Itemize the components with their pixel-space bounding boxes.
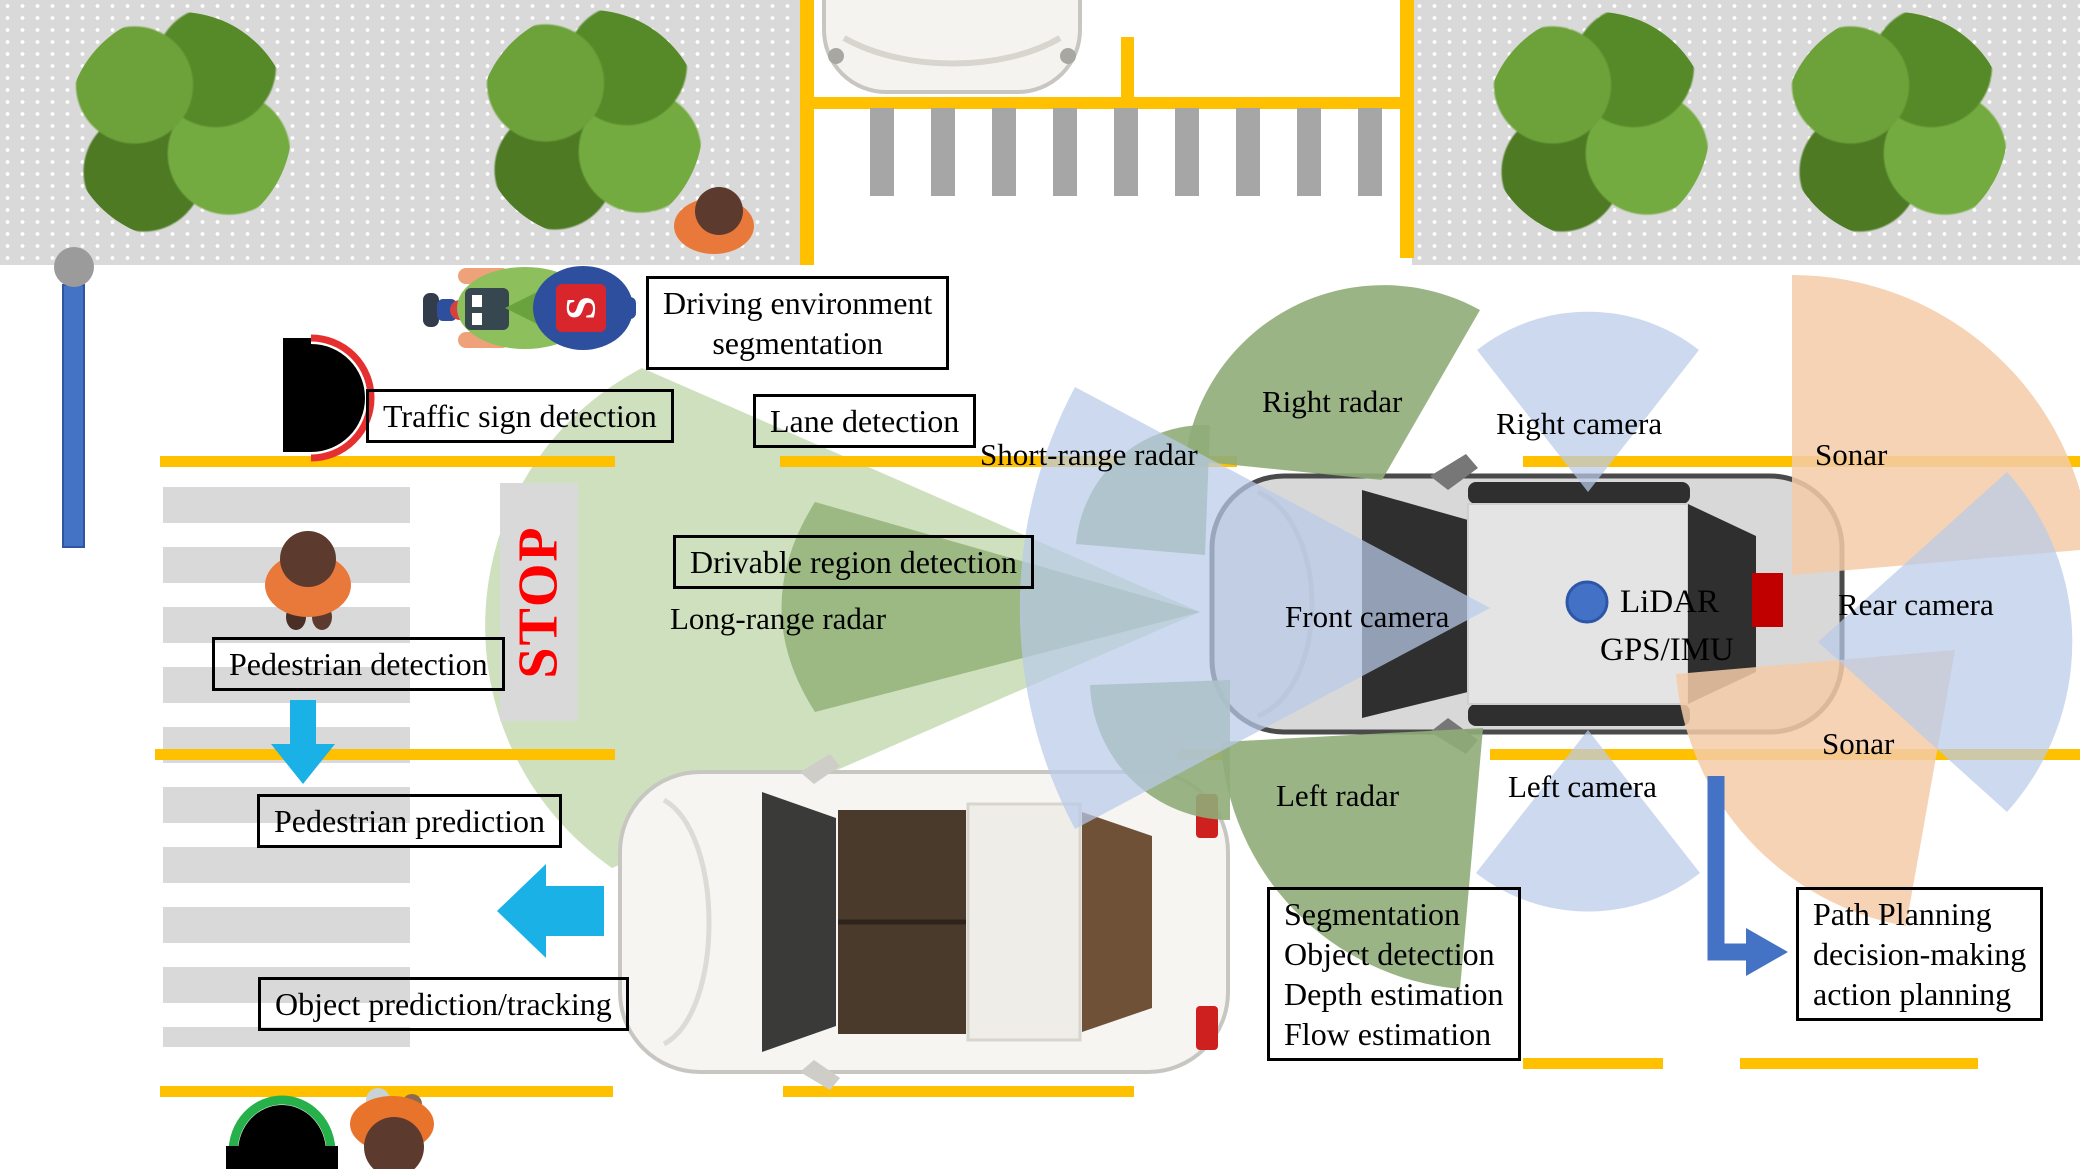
lidar-dot <box>1567 582 1607 622</box>
pedestrian-icon-bottom <box>350 1088 434 1169</box>
stop-text: STOP <box>507 525 571 678</box>
box-object-prediction-tracking: Object prediction/tracking <box>258 977 629 1031</box>
white-car-bottom <box>620 754 1228 1090</box>
pedestrian-icon-crosswalk <box>265 531 351 630</box>
taillight <box>1196 1006 1218 1050</box>
label-lidar: LiDAR <box>1620 584 1719 620</box>
driving-scene-diagram: S <box>0 0 2080 1169</box>
box-traffic-sign-detection: Traffic sign detection <box>366 389 674 443</box>
label-left-radar: Left radar <box>1276 779 1399 813</box>
stop-road-marking: STOP <box>500 483 578 721</box>
pedestrian-icon-top-sidewalk <box>674 187 754 254</box>
label-rear-camera: Rear camera <box>1838 588 1994 622</box>
white-car-top <box>824 0 1080 92</box>
label-left-camera: Left camera <box>1508 770 1657 804</box>
signal-pole-icon <box>54 247 94 547</box>
label-front-camera: Front camera <box>1285 600 1449 634</box>
right-radar-fan <box>1185 285 1480 480</box>
label-right-radar: Right radar <box>1262 385 1402 419</box>
label-right-camera: Right camera <box>1496 407 1662 441</box>
box-perception-outputs: Segmentation Object detection Depth esti… <box>1267 887 1521 1061</box>
box-driving-environment-segmentation: Driving environment segmentation <box>646 276 949 370</box>
arrow-left-object-flow <box>497 864 604 958</box>
box-lane-detection: Lane detection <box>753 394 976 448</box>
label-gps-imu: GPS/IMU <box>1600 632 1734 668</box>
box-pedestrian-detection: Pedestrian detection <box>212 637 505 691</box>
traffic-light-icon <box>283 338 371 458</box>
box-pedestrian-prediction: Pedestrian prediction <box>257 794 562 848</box>
arrow-down-pedestrian-flow <box>271 700 335 784</box>
motorcycle-icon: S <box>423 266 636 350</box>
label-long-range-radar: Long-range radar <box>670 602 886 636</box>
label-short-range-radar: Short-range radar <box>980 438 1198 472</box>
label-sonar-top: Sonar <box>1815 438 1887 472</box>
box-path-planning: Path Planning decision-making action pla… <box>1796 887 2043 1021</box>
delivery-badge-letter: S <box>559 296 605 319</box>
label-sonar-bottom: Sonar <box>1822 727 1894 761</box>
gps-imu-unit <box>1752 573 1783 627</box>
windshield <box>762 792 836 1052</box>
box-drivable-region-detection: Drivable region detection <box>673 535 1034 589</box>
pedestrian-signal-icon <box>226 1100 338 1169</box>
